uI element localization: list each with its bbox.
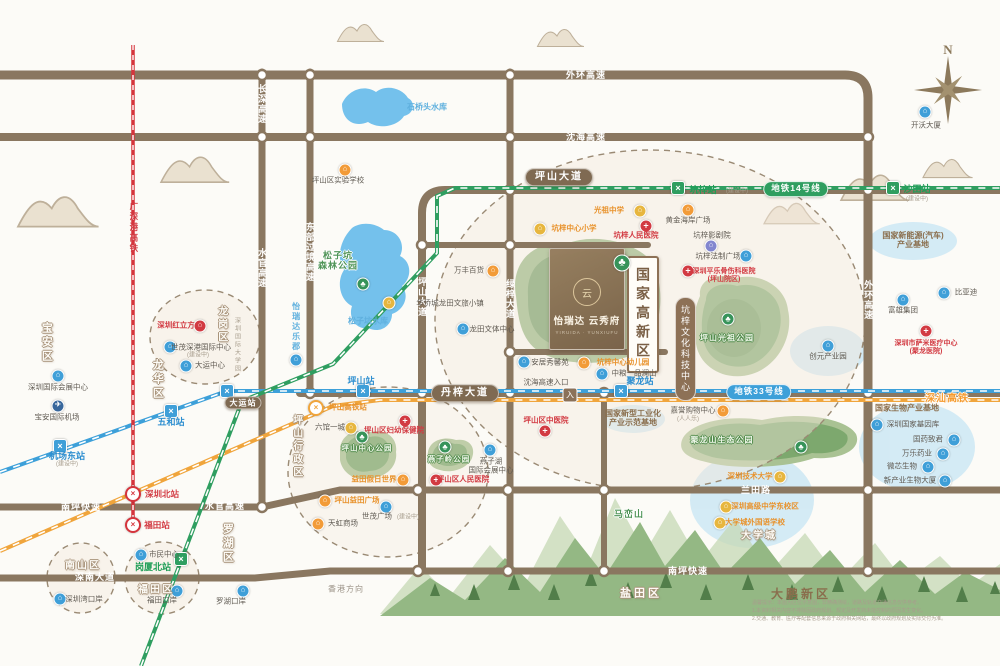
map-markers-layer: 外环高速沈海高速长深高速水官高速东部过境高速外环高速坪山大道绿梓大道南坪快速水官…: [0, 0, 1000, 666]
poi-icon-kengzi-kindergarten: ⌂: [578, 357, 591, 370]
poi-icon-jiayu: ⌂: [717, 405, 730, 418]
park-icon-pingshan-center: ♣: [356, 431, 369, 444]
road-label-pingshandadao-v: 坪山大道: [417, 277, 427, 317]
station-note-jichangdong: (建设中): [56, 462, 78, 469]
area-label-longgang: 龙岗区: [215, 306, 227, 345]
poi-icon-oct-town: ⌂: [383, 297, 396, 310]
poi-label-yanzihu: 燕子湖 国际会展中心: [469, 457, 514, 474]
poi-icon-fazhi: ⌂: [740, 250, 753, 263]
poi-icon-gene-bank: ⌂: [871, 419, 884, 432]
station-label-jichangdong: 机场东站: [49, 451, 85, 461]
disclaimer-line: 2.交通、教育、医疗等配套信息来源于政府相关网站，最终以政府规划及实际交付为准。: [752, 615, 994, 623]
poi-label-yiruida-lejun: 怡瑞达乐郡: [291, 302, 300, 352]
poi-icon-kaiwo: ⌂: [919, 106, 932, 119]
poi-label-shenzhenwan: 深圳湾口岸: [65, 596, 103, 605]
poi-label-futiankouan: 福田口岸: [147, 597, 177, 606]
poi-label-fazhi: 坑梓法制广场: [696, 253, 741, 262]
road-label-waihuan: 外环高速: [566, 70, 606, 80]
park-icon-julongshan: ♣: [795, 441, 808, 454]
park-label-pingshan-center: 坪山中心公园: [342, 445, 393, 454]
entrance-label: 沈海高速入口: [524, 379, 569, 388]
poi-icon-sami: +: [920, 325, 933, 338]
park-icon-yanziling: ♣: [439, 441, 452, 454]
road-label-shuiguan-h: 水官高速: [205, 501, 245, 511]
poi-label-xinxing-base: 国家新型工业化 产业示范基地: [605, 409, 661, 427]
poi-label-luohukouan: 罗湖口岸: [216, 598, 246, 607]
park-label-yanziling: 燕子岭公园: [428, 456, 471, 465]
park-icon-songzikeng: ♣: [357, 278, 370, 291]
poi-label-tianhong: 天虹商场: [328, 520, 358, 529]
disclaimer-line: 温馨提示：本图为区位示意图，非精确测绘，道路及轨道交通信息仅供参考。: [752, 599, 994, 607]
station-label-pingshan-hsr: 坪山高铁站: [329, 404, 367, 413]
poi-label-guangzu-school: 光祖中学: [594, 207, 624, 216]
area-label-yantian: 盐田区: [620, 588, 662, 601]
road-label-lvzidadao: 绿梓大道: [505, 279, 515, 319]
station-label-futianzhan: 福田站: [144, 521, 170, 531]
poi-note-shimao-plaza: (建设中): [397, 515, 419, 522]
disclaimer: 温馨提示：本图为区位示意图，非精确测绘，道路及轨道交通信息仅供参考。 1.本资料…: [752, 599, 994, 623]
poi-icon-sztu: ⌂: [774, 471, 787, 484]
poi-icon-shiyan-school: ⌂: [339, 164, 352, 177]
poi-label-shiyan-school: 坪山区实验学校: [312, 177, 365, 186]
poi-icon-fuxiong: ⌂: [897, 294, 910, 307]
park-label-guangzu: 坪山光祖公园: [700, 333, 754, 342]
rail-label-hsr: 广深港高铁: [128, 202, 138, 255]
poi-label-byd: 比亚迪: [955, 289, 978, 298]
poi-label-pingle: 深圳平乐骨伤科医院 (坪山院区): [693, 268, 756, 284]
entrance-icon: 入: [563, 388, 578, 403]
poi-label-chuangyuan: 创元产业园: [809, 353, 847, 362]
poi-label-dxc-school: 大学城外国语学校: [725, 519, 785, 528]
road-label-waihuan-v: 外环高速: [863, 280, 873, 320]
road-label-nanping-east: 南坪快速: [668, 566, 708, 576]
area-label-pingshan-admin: 坪山行政区: [290, 415, 302, 480]
road-label-lantian: 兰田路: [741, 485, 771, 495]
poi-label-xinchanye: 新产业生物大厦: [884, 477, 937, 486]
station-icon-shenzhenbei: ×: [125, 486, 141, 502]
poi-label-dayun-center: 大运中心: [195, 362, 225, 371]
poi-icon-wanfeng: ⌂: [487, 265, 500, 278]
road-badge-danzidadao: 丹梓大道: [431, 384, 499, 402]
road-badge-pingshandadao: 坪山大道: [525, 168, 593, 186]
poi-icon-yanzihu: ⌂: [484, 444, 497, 457]
area-label-baoan: 宝安区: [40, 322, 53, 364]
poi-label-jiayu: 嘉誉购物中心: [671, 407, 716, 416]
poi-label-kengzi-primary: 坑梓中心小学: [552, 225, 597, 234]
poi-label-xinnengyuan-base: 国家新能源(汽车) 产业基地: [882, 231, 943, 249]
poi-label-renmin-hospital: 坪山区人民医院: [437, 476, 490, 485]
poi-label-longtianwenti: 龙田文体中心: [470, 326, 515, 335]
poi-label-yitianguangchang: 坪山益田广场: [335, 497, 380, 506]
station-icon-futianzhan: ×: [125, 517, 141, 533]
poi-label-anju: 安居秀馨苑: [531, 359, 569, 368]
poi-label-kengzi-kindergarten: 坑梓中心幼儿园: [597, 359, 650, 368]
station-label-shenzhenbei: 深圳北站: [145, 490, 179, 500]
poi-icon-zhongyiyuan: +: [539, 425, 552, 438]
park-label-julongshan: 聚龙山生态公园: [691, 435, 754, 444]
station-note-kengzi: (建设中): [726, 189, 748, 196]
poi-icon-yingjuyuan: ⌂: [705, 240, 718, 253]
metro-badge-line14: 地铁14号线: [763, 181, 828, 197]
mountain-label-maluanshan: 马峦山: [614, 509, 644, 519]
poi-label-weixin: 微芯生物: [887, 463, 917, 472]
poi-label-sztu: 深圳技术大学: [728, 473, 773, 482]
poi-label-oct-town: 华侨城龙田文旅小镇: [416, 300, 484, 309]
poi-label-bio-base: 国家生物产业基地: [875, 403, 939, 412]
poi-icon-wanle: ⌂: [937, 448, 950, 461]
poi-icon-xinchanye: ⌂: [939, 475, 952, 488]
station-icon-kengzi: ×: [671, 181, 685, 195]
poi-label-guoyao: 国药致君: [913, 436, 943, 445]
poi-label-shimin: 市民中心: [149, 551, 179, 560]
road-label-changshen: 长深高速: [257, 84, 267, 124]
poi-icon-yiruida-lejun: ⌂: [290, 354, 303, 367]
station-label-gangxiabei: 岗厦北站: [135, 562, 171, 572]
project-tree-icon: ♣: [614, 255, 631, 272]
poi-icon-byd: ⌂: [938, 287, 951, 300]
area-label-futian: 福田区: [138, 584, 174, 596]
station-label-wuhe: 五和站: [157, 417, 184, 427]
poi-icon-airport: ✈: [52, 400, 65, 413]
poi-label-fuyou: 坪山区妇幼保健院: [364, 427, 424, 436]
station-label-kengzi: 坑梓站: [689, 185, 716, 195]
poi-label-honglifang: 深圳红立方: [157, 322, 195, 331]
metro-badge-line33: 地铁33号线: [726, 384, 791, 400]
park-icon-guangzu: ♣: [722, 313, 735, 326]
poi-label-exhibition: 深圳国际会展中心: [28, 384, 88, 393]
station-badge-dayun: 大运站: [225, 396, 262, 409]
station-icon-pingshan-hsr: ×: [308, 400, 324, 416]
poi-icon-luohukouan: ⌂: [237, 585, 250, 598]
road-label-shenhai: 沈海高速: [566, 132, 606, 142]
poi-icon-huangjin: ⌂: [682, 204, 695, 217]
poi-label-huangjin: 黄金海岸广场: [666, 217, 711, 226]
poi-label-wanfeng: 万丰百货: [454, 267, 484, 276]
road-label-shuiguan-v: 水官高速: [257, 248, 267, 288]
poi-label-gene-bank: 深圳国家基因库: [887, 421, 940, 430]
area-label-longhua: 龙华区: [151, 359, 164, 401]
poi-note-shimao-shengang: (建设中): [187, 353, 209, 360]
poi-label-sami: 深圳市萨米医疗中心 (聚龙医院): [895, 340, 958, 356]
poi-label-fuxiong: 富雄集团: [888, 307, 918, 316]
poi-icon-yitian: ⌂: [397, 474, 410, 487]
poi-label-shimao-plaza: 世茂广场: [362, 513, 392, 522]
poi-label-kaiwo: 开沃大厦: [911, 122, 941, 131]
label-hongkong-direction: 香港方向: [328, 584, 364, 593]
poi-icon-guangzu-school: ⌂: [634, 205, 647, 218]
road-label-shennan: 深南大道: [75, 572, 115, 582]
poi-label-zhongliang: 中粮一品澜山: [612, 370, 657, 379]
poi-label-airport: 宝安国际机场: [35, 414, 80, 423]
poi-icon-honglifang: ⌂: [194, 320, 207, 333]
poi-icon-tianhong: ⌂: [312, 518, 325, 531]
poi-label-shimao-shengang: 世茂深港国际中心: [171, 344, 231, 353]
poi-icon-chuangyuan: ⌂: [822, 340, 835, 353]
poi-icon-weixin: ⌂: [922, 461, 935, 474]
poi-icon-longtianwenti: ⌂: [457, 323, 470, 336]
road-label-dongbuguojing: 东部过境高速: [305, 222, 315, 282]
poi-label-daxueyuan: 深圳国际大学园: [233, 317, 240, 373]
poi-label-kengzi-hospital: 坑梓人民医院: [614, 232, 659, 241]
poi-icon-zhongliang: ⌂: [596, 368, 609, 381]
poi-icon-exhibition: ⌂: [52, 370, 65, 383]
poi-label-wanle: 万乐药业: [902, 450, 932, 459]
station-note-shatian: (建设中): [906, 197, 928, 204]
park-label-songzikeng: 松子坑 森林公园: [318, 251, 358, 272]
poi-label-liuguanyicheng: 六馆一城: [315, 424, 345, 433]
station-label-shatian: 沙田站: [903, 184, 930, 194]
poi-label-yitian: 益田假日世界: [352, 476, 397, 485]
poi-icon-shimin: ⌂: [135, 549, 148, 562]
disclaimer-line: 1.本资料相关内容不排除因政府规划、规定及开发商未能控制的原因发生变化。: [752, 607, 994, 615]
water-label-shiqiaotou: 石桥头水库: [407, 102, 447, 111]
poi-note-jiayu: (人人乐): [677, 417, 699, 424]
poi-icon-anju: ⌂: [518, 356, 531, 369]
road-label-nanping-west: 南坪快速: [61, 502, 101, 512]
station-label-pingshan: 坪山站: [347, 376, 374, 386]
station-icon-shatian: ×: [886, 181, 900, 195]
area-label-nanshan: 南山区: [65, 560, 101, 572]
location-map: 云 怡瑞达 云秀府 YIRUIDA · YUNXIUFU 国家高新区 坑梓文化科…: [0, 0, 1000, 666]
area-label-luohu: 罗湖区: [221, 523, 234, 565]
poi-icon-dayun-center: ⌂: [180, 360, 193, 373]
poi-icon-yitianguangchang: ⌂: [319, 495, 332, 508]
poi-icon-guoyao: ⌂: [948, 434, 961, 447]
poi-label-szgaoji: 深圳高级中学东校区: [731, 503, 799, 512]
poi-icon-kengzi-primary: ⌂: [534, 223, 547, 236]
water-label-songzikeng: 松子坑水库: [348, 316, 388, 325]
area-label-daxuecheng: 大学城: [741, 530, 777, 542]
